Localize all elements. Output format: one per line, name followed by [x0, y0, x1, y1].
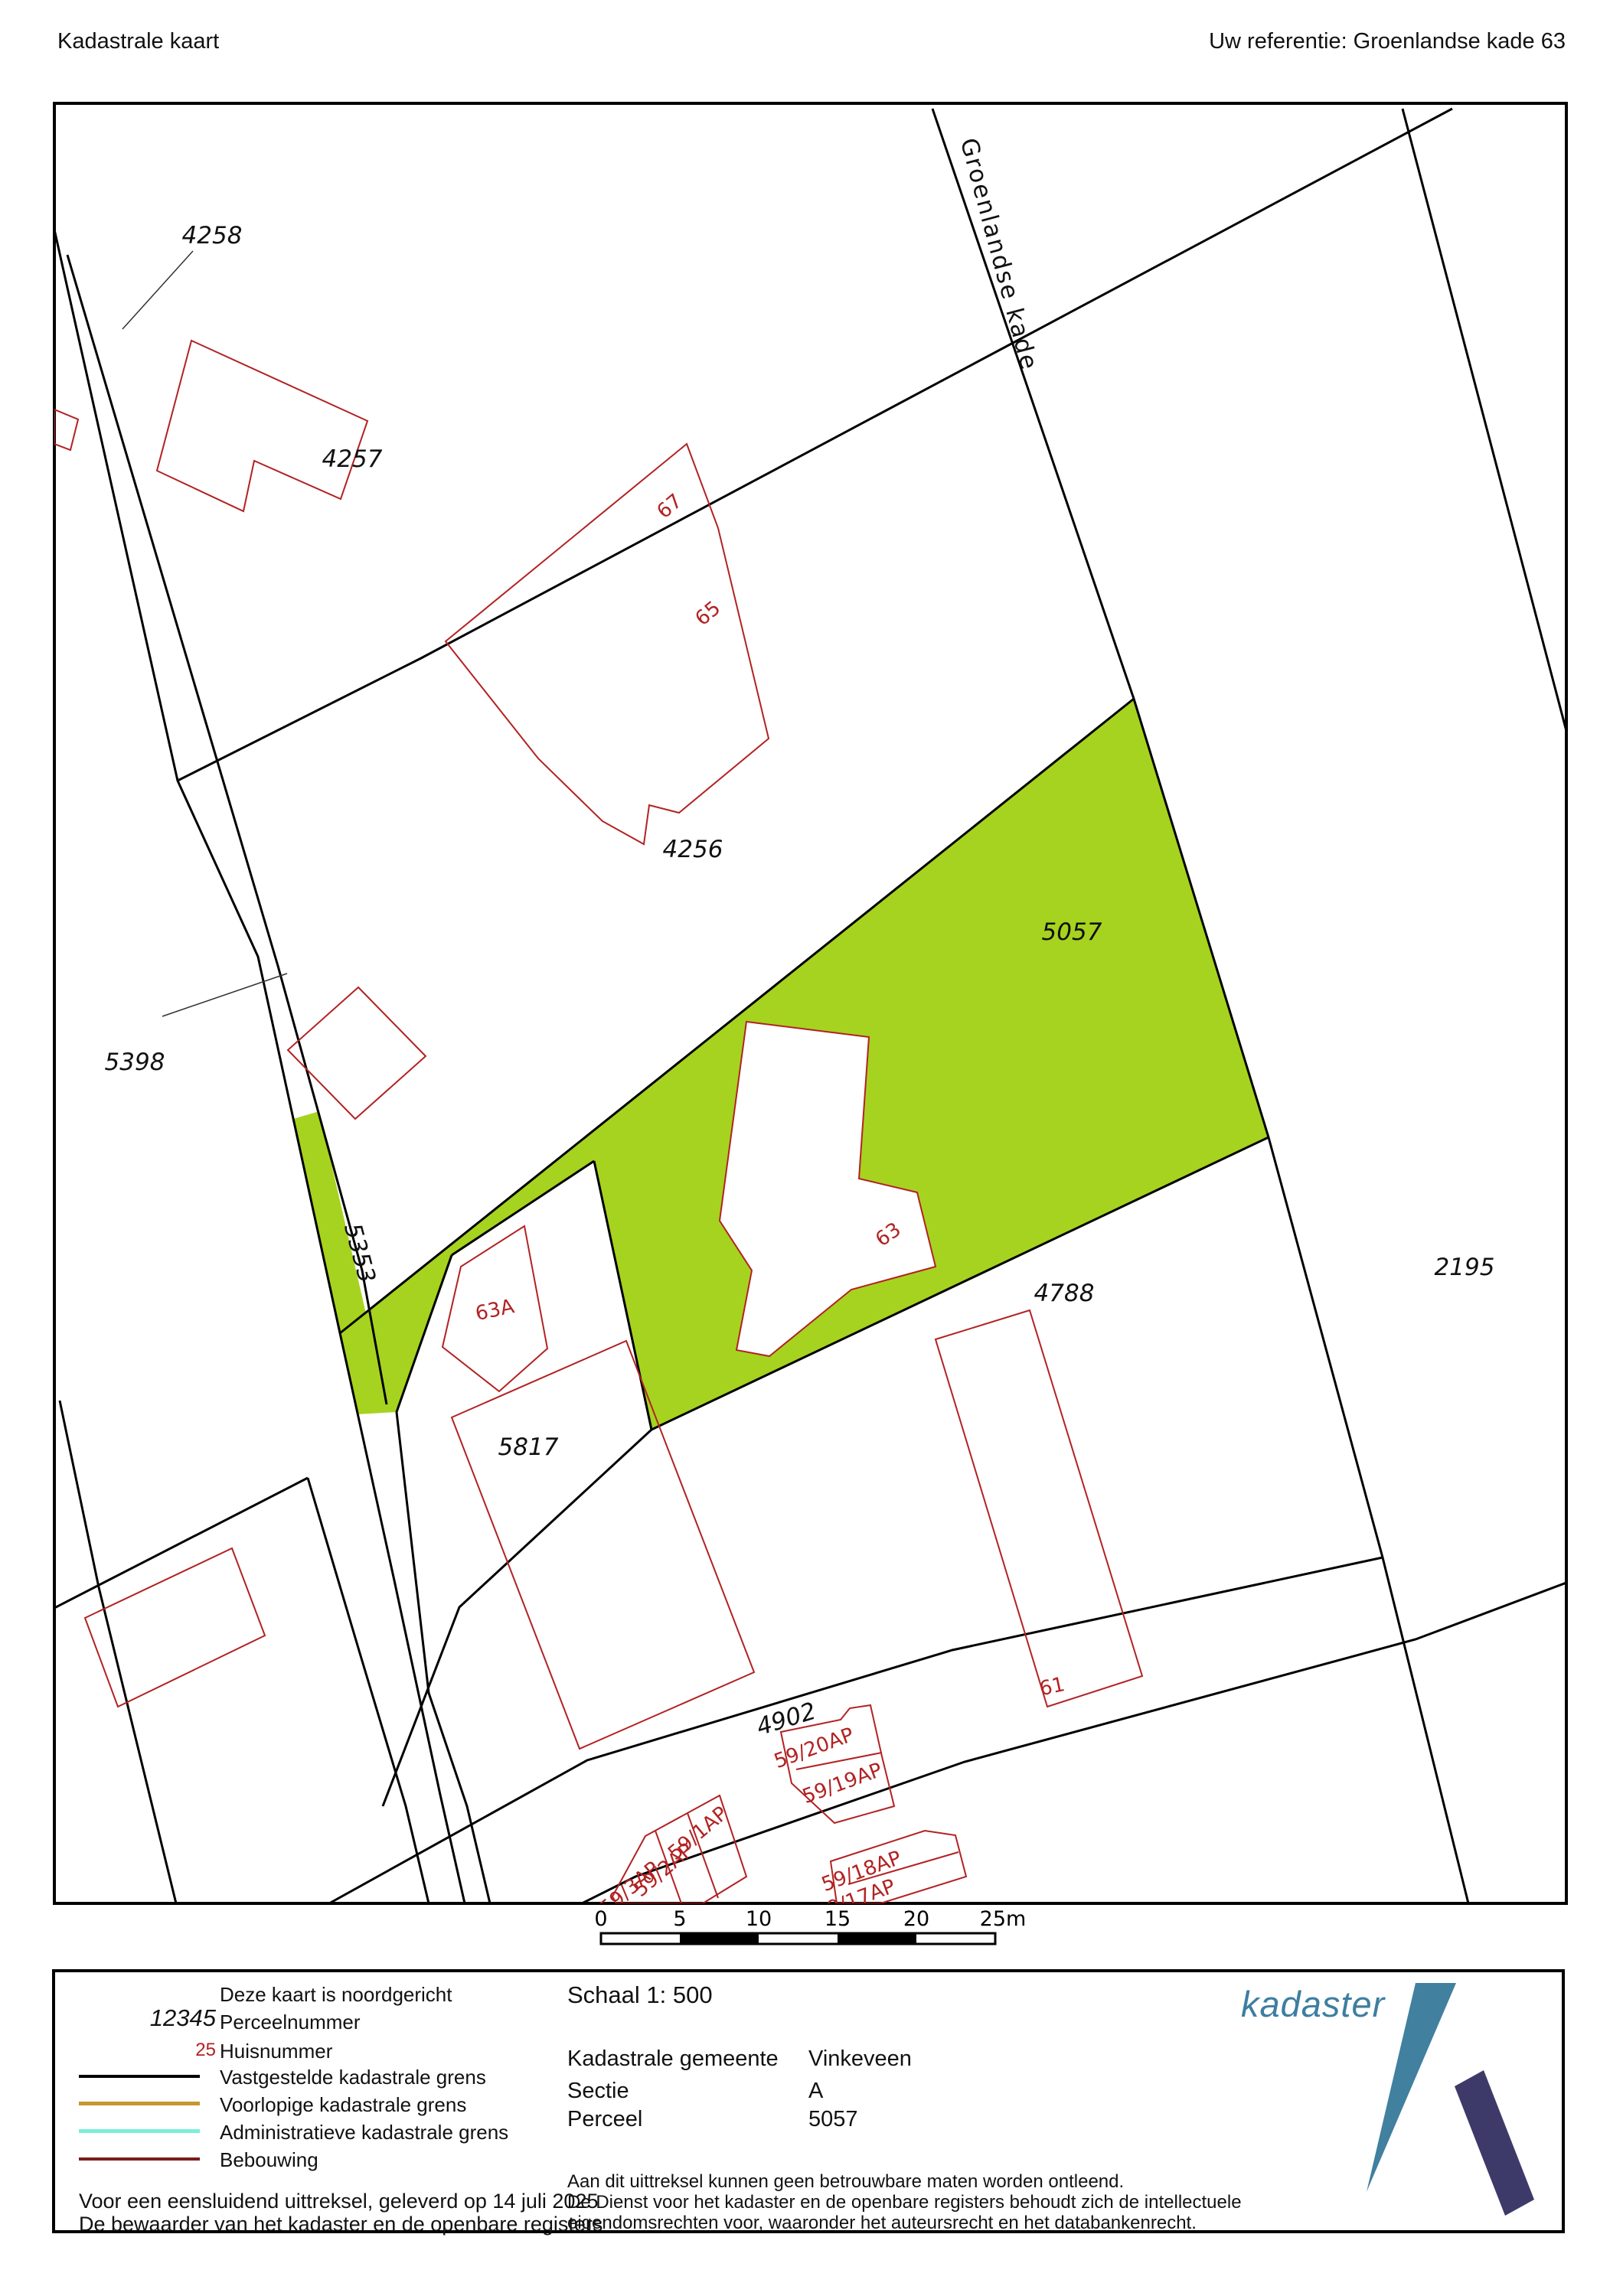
parcel-label-4257: 4257 — [322, 445, 383, 473]
sectie-label: Sectie — [567, 2079, 629, 2104]
parcel-label-4788: 4788 — [1034, 1280, 1095, 1307]
scale-tick-5: 5 — [673, 1907, 686, 1931]
legend-line-vastgesteld — [79, 2075, 200, 2078]
perceel-value: 5057 — [808, 2107, 858, 2132]
scale-tick-10: 10 — [746, 1907, 772, 1931]
gemeente-label: Kadastrale gemeente — [567, 2047, 779, 2072]
scale-text: Schaal 1: 500 — [567, 1981, 713, 2009]
certification-line-2: De bewaarder van het kadaster en de open… — [79, 2213, 603, 2236]
parcel-label-5817: 5817 — [498, 1433, 559, 1461]
parcel-label-5057: 5057 — [1042, 918, 1102, 946]
parcel-label-4256: 4256 — [663, 836, 723, 863]
legend-label-administratief: Administratieve kadastrale grens — [220, 2121, 508, 2144]
parcel-label-2195: 2195 — [1435, 1254, 1495, 1281]
sectie-value: A — [808, 2079, 823, 2104]
scale-tick-15: 15 — [825, 1907, 851, 1931]
cadastral-extract-page: Kadastrale kaart Uw referentie: Groenlan… — [0, 0, 1623, 2296]
legend-line-administratief — [79, 2129, 200, 2133]
gemeente-value: Vinkeveen — [808, 2047, 912, 2072]
north-note: Deze kaart is noordgericht — [220, 1983, 452, 2007]
legend-label-bebouwing: Bebouwing — [220, 2148, 318, 2172]
parcel-label-4258: 4258 — [182, 222, 243, 249]
legend-label-voorlopig: Voorlopige kadastrale grens — [220, 2093, 466, 2117]
disclaimer-line-2: De Dienst voor het kadaster en de openba… — [567, 2192, 1242, 2213]
scale-tick-20: 20 — [903, 1907, 929, 1931]
house-number-label: Huisnummer — [220, 2040, 332, 2063]
cadastral-map: 4258 4257 4256 5398 5353 5817 5057 4788 … — [0, 0, 1623, 1959]
legend-line-bebouwing — [79, 2157, 200, 2161]
disclaimer-line-3: eigendomsrechten voor, waaronder het aut… — [567, 2213, 1197, 2234]
scale-bar: 0 5 10 15 20 25m — [594, 1907, 1026, 1944]
house-number-sample: 25 — [124, 2040, 216, 2061]
legend-box: Deze kaart is noordgericht 12345 Perceel… — [52, 1969, 1565, 2233]
legend-label-vastgesteld: Vastgestelde kadastrale grens — [220, 2066, 486, 2089]
parcel-number-sample: 12345 — [124, 2004, 216, 2032]
scale-tick-0: 0 — [594, 1907, 607, 1931]
certification-line-1: Voor een eensluidend uittreksel, gelever… — [79, 2190, 598, 2213]
parcel-number-label: Perceelnummer — [220, 2011, 361, 2034]
legend-line-voorlopig — [79, 2102, 200, 2105]
perceel-label: Perceel — [567, 2107, 642, 2132]
parcel-label-5398: 5398 — [105, 1049, 165, 1076]
disclaimer-line-1: Aan dit uittreksel kunnen geen betrouwba… — [567, 2171, 1124, 2193]
scale-tick-25m: 25m — [980, 1907, 1027, 1931]
kadaster-logo-mark — [1357, 1978, 1556, 2231]
